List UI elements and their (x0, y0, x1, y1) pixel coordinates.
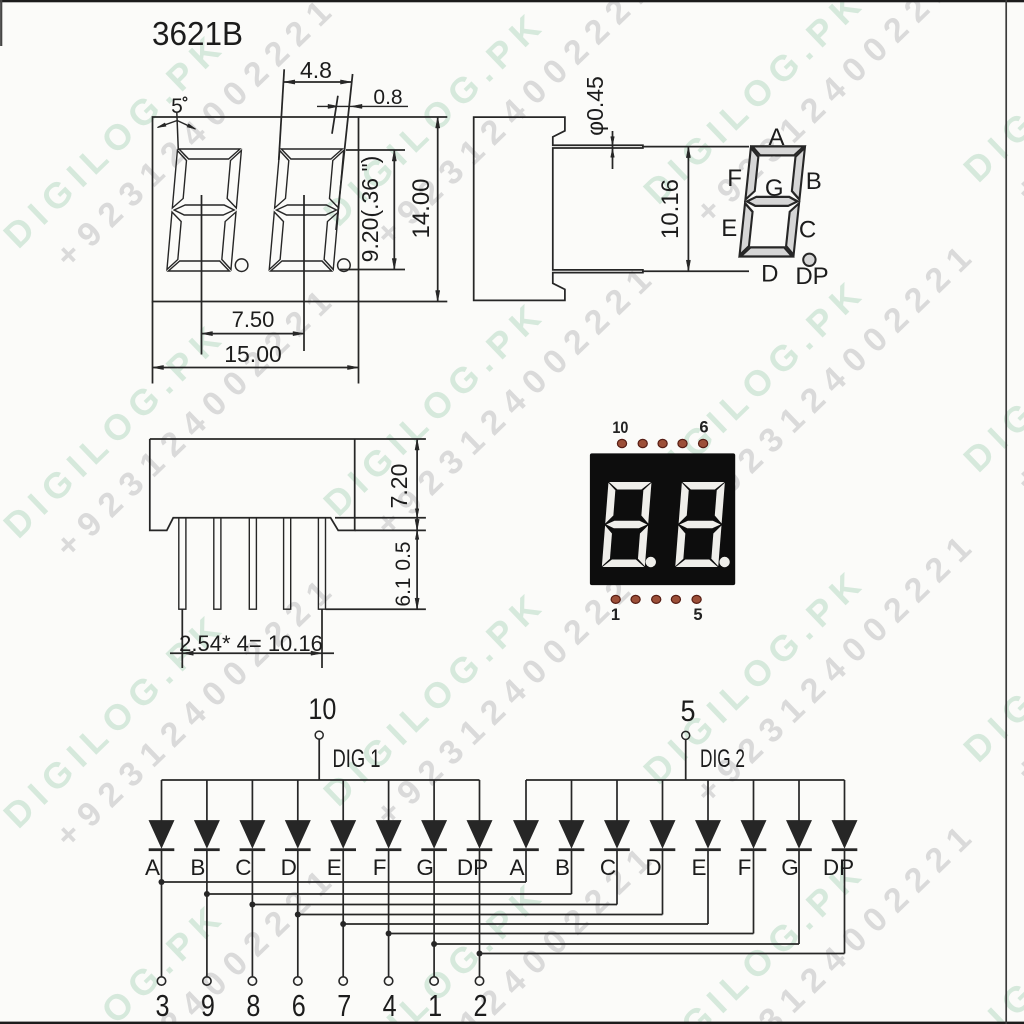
svg-text:6.1: 6.1 (392, 577, 415, 606)
svg-text:7.20: 7.20 (386, 464, 412, 509)
svg-text:D: D (761, 261, 778, 288)
svg-text:G: G (781, 855, 799, 880)
svg-text:2: 2 (474, 988, 488, 1023)
svg-text:A: A (145, 855, 160, 880)
svg-text:D: D (281, 855, 297, 880)
svg-text:15.00: 15.00 (224, 341, 282, 367)
svg-text:8: 8 (246, 988, 260, 1023)
svg-text:F: F (727, 165, 742, 192)
svg-text:DP: DP (457, 855, 488, 880)
svg-text:3621B: 3621B (152, 15, 243, 52)
svg-text:DP: DP (823, 855, 854, 880)
svg-text:A: A (509, 855, 524, 880)
svg-text:DIG 2: DIG 2 (700, 745, 745, 773)
svg-text:0.5: 0.5 (392, 541, 415, 570)
svg-text:E: E (327, 855, 342, 880)
svg-text:4.8: 4.8 (300, 57, 332, 83)
svg-text:C: C (235, 855, 251, 880)
svg-text:DIG 1: DIG 1 (333, 745, 381, 773)
svg-text:10.16: 10.16 (657, 179, 684, 239)
svg-text:DP: DP (795, 263, 828, 290)
svg-text:6: 6 (699, 419, 708, 437)
svg-text:14.00: 14.00 (408, 178, 435, 238)
svg-text:E: E (691, 855, 706, 880)
svg-text:4: 4 (383, 988, 397, 1023)
svg-text:5: 5 (693, 606, 702, 624)
svg-text:3: 3 (156, 988, 170, 1023)
svg-text:C: C (600, 855, 616, 880)
svg-text:F: F (373, 855, 387, 880)
svg-text:10: 10 (308, 693, 336, 726)
svg-text:B: B (806, 168, 822, 195)
svg-text:A: A (768, 124, 784, 151)
svg-text:10: 10 (612, 419, 628, 437)
svg-text:2.54* 4= 10.16: 2.54* 4= 10.16 (179, 631, 323, 656)
svg-text:0.8: 0.8 (373, 86, 402, 109)
svg-text:D: D (645, 855, 661, 880)
svg-text:G: G (765, 175, 784, 202)
svg-text:6: 6 (292, 988, 306, 1023)
svg-text:F: F (738, 855, 752, 880)
svg-text:7: 7 (337, 988, 351, 1023)
svg-text:G: G (416, 855, 434, 880)
svg-text:9: 9 (201, 988, 215, 1023)
svg-text:7.50: 7.50 (232, 307, 275, 332)
svg-text:φ0.45: φ0.45 (582, 76, 608, 136)
svg-text:E: E (721, 215, 737, 242)
svg-text:C: C (799, 217, 816, 244)
svg-text:9.20(.36 "): 9.20(.36 ") (357, 156, 383, 263)
svg-text:1: 1 (428, 988, 442, 1023)
svg-text:5: 5 (681, 695, 696, 728)
svg-text:1: 1 (611, 606, 620, 624)
svg-text:B: B (190, 855, 205, 880)
svg-text:B: B (555, 855, 570, 880)
